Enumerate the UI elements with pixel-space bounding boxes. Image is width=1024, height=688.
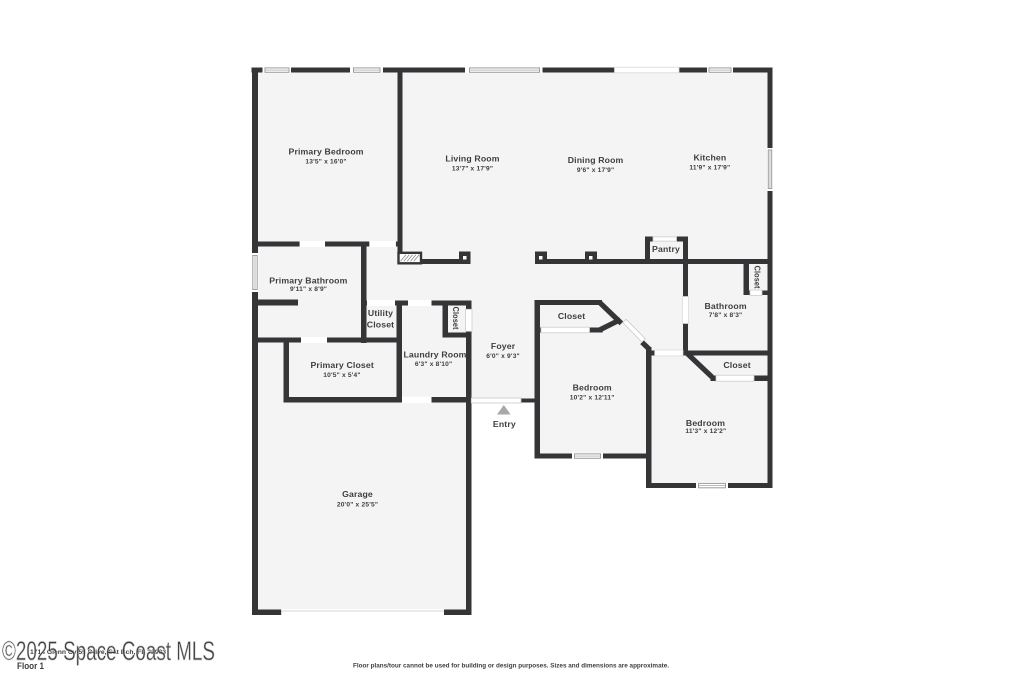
svg-text:Foyer: Foyer <box>491 341 516 351</box>
svg-text:Bedroom: Bedroom <box>573 382 612 392</box>
svg-text:6'0" x 9'3": 6'0" x 9'3" <box>486 353 520 360</box>
svg-text:Closet: Closet <box>367 319 394 329</box>
svg-text:7'8" x 8'3": 7'8" x 8'3" <box>709 312 743 319</box>
svg-text:Laundry Room: Laundry Room <box>403 350 466 360</box>
svg-text:Pantry: Pantry <box>652 244 680 254</box>
svg-text:Dining Room: Dining Room <box>568 155 624 165</box>
svg-text:6'3" x 8'10": 6'3" x 8'10" <box>415 361 452 368</box>
svg-text:Living Room: Living Room <box>445 154 499 164</box>
svg-text:Bathroom: Bathroom <box>704 301 746 311</box>
svg-text:Entry: Entry <box>493 419 516 429</box>
svg-text:13'7" x 17'9": 13'7" x 17'9" <box>452 165 493 172</box>
svg-text:20'0" x 25'5": 20'0" x 25'5" <box>337 502 378 509</box>
svg-text:9'11" x 8'9": 9'11" x 8'9" <box>290 286 327 293</box>
svg-text:Primary Bedroom: Primary Bedroom <box>289 147 364 157</box>
svg-text:13'5" x 16'0": 13'5" x 16'0" <box>305 158 346 165</box>
svg-text:Floor 1: Floor 1 <box>17 661 45 672</box>
svg-text:Primary Bathroom: Primary Bathroom <box>269 275 347 285</box>
svg-text:9'6" x 17'9": 9'6" x 17'9" <box>577 167 614 174</box>
svg-text:10'5" x 5'4": 10'5" x 5'4" <box>323 372 360 379</box>
svg-text:Floor plans/tour cannot be use: Floor plans/tour cannot be used for buil… <box>353 663 669 670</box>
svg-text:Closet: Closet <box>451 307 461 330</box>
svg-text:Primary Closet: Primary Closet <box>310 360 373 370</box>
svg-text:10'2" x 12'11": 10'2" x 12'11" <box>570 395 615 402</box>
svg-text:Closet: Closet <box>558 311 585 321</box>
svg-text:Bedroom: Bedroom <box>686 418 725 428</box>
svg-text:11'9" x 17'9": 11'9" x 17'9" <box>689 164 730 171</box>
svg-text:Closet: Closet <box>723 360 750 370</box>
svg-text:Utility: Utility <box>368 308 393 318</box>
svg-text:Garage: Garage <box>342 489 373 499</box>
svg-text:Closet: Closet <box>753 266 763 289</box>
svg-text:11'3" x 12'2": 11'3" x 12'2" <box>685 428 726 435</box>
svg-text:Kitchen: Kitchen <box>693 153 726 163</box>
